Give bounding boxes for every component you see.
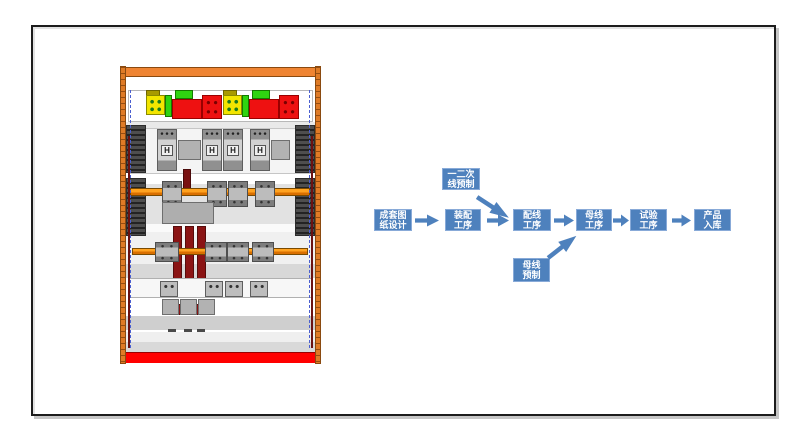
green-strip bbox=[242, 95, 249, 117]
gray-panel bbox=[162, 202, 214, 224]
cabinet-band bbox=[126, 332, 315, 342]
gray-block bbox=[180, 299, 197, 315]
flow-step-warehousing: 产品 入库 bbox=[694, 209, 731, 231]
arrow-right-icon bbox=[613, 214, 629, 227]
yellow-terminal-block bbox=[223, 95, 242, 115]
breaker-symbol: H bbox=[227, 145, 239, 156]
marking-dash bbox=[197, 329, 205, 332]
yellow-terminal-block bbox=[146, 95, 165, 115]
spacer-block bbox=[178, 140, 201, 160]
cabinet-right-rail bbox=[315, 66, 321, 364]
cabinet-band bbox=[126, 342, 315, 352]
cabinet-top-frame bbox=[120, 67, 321, 77]
flow-branch-busbar-prefab: 母线 预制 bbox=[513, 258, 550, 282]
maroon-line bbox=[128, 136, 130, 348]
flow-step-assembly: 装配 工序 bbox=[445, 209, 481, 231]
arrow-up-right-icon bbox=[544, 230, 581, 263]
spacer-block bbox=[271, 140, 290, 160]
breaker-symbol: H bbox=[254, 145, 266, 156]
flow-step-label: 试验 工序 bbox=[639, 210, 657, 230]
flow-branch-wire-prefab: 一二次 线预制 bbox=[442, 168, 480, 190]
dark-red-riser bbox=[183, 169, 191, 190]
busbar-clamp bbox=[205, 242, 227, 262]
guide-line bbox=[130, 90, 131, 348]
busbar-clamp bbox=[252, 242, 274, 262]
flow-step-label: 成套图 纸设计 bbox=[379, 210, 406, 230]
cabinet-band bbox=[126, 77, 315, 90]
green-tab bbox=[252, 90, 270, 99]
gray-block bbox=[162, 299, 179, 315]
circuit-breaker: H bbox=[250, 129, 270, 171]
maroon-line bbox=[311, 136, 313, 348]
breaker-symbol: H bbox=[206, 145, 218, 156]
cabinet-band bbox=[126, 264, 315, 278]
arrow-right-icon bbox=[415, 214, 439, 227]
terminal-block bbox=[225, 281, 243, 297]
circuit-breaker: H bbox=[223, 129, 243, 171]
flow-step-label: 母线 工序 bbox=[585, 210, 603, 230]
busbar-clamp bbox=[255, 181, 275, 207]
marking-dash bbox=[168, 329, 176, 332]
slide-canvas: H H H H bbox=[31, 25, 776, 416]
circuit-breaker: H bbox=[202, 129, 222, 171]
arrow-right-icon bbox=[554, 214, 574, 227]
flow-step-label: 装配 工序 bbox=[454, 210, 472, 230]
red-terminal-block bbox=[249, 99, 279, 119]
flow-step-label: 母线 预制 bbox=[522, 260, 540, 280]
cabinet-bottom-red-strip bbox=[126, 352, 315, 363]
gray-block bbox=[198, 299, 215, 315]
cabinet-band bbox=[126, 224, 315, 232]
flow-step-busbar: 母线 工序 bbox=[576, 209, 612, 231]
guide-line bbox=[309, 90, 310, 348]
flow-step-wiring: 配线 工序 bbox=[513, 209, 551, 231]
terminal-block bbox=[160, 281, 178, 297]
red-terminal-block bbox=[279, 95, 299, 119]
busbar-clamp bbox=[228, 181, 248, 207]
busbar-clamp bbox=[227, 242, 249, 262]
busbar-clamp bbox=[155, 242, 179, 262]
red-terminal-block bbox=[202, 95, 222, 119]
cabinet-band bbox=[126, 316, 315, 330]
flow-step-testing: 试验 工序 bbox=[630, 209, 667, 231]
green-tab bbox=[175, 90, 193, 99]
terminal-block bbox=[250, 281, 268, 297]
terminal-block bbox=[205, 281, 223, 297]
flow-step-drawing-design: 成套图 纸设计 bbox=[374, 209, 412, 231]
flow-step-label: 配线 工序 bbox=[523, 210, 541, 230]
arrow-right-icon bbox=[672, 214, 691, 227]
flow-step-label: 产品 入库 bbox=[703, 210, 721, 230]
marking-dash bbox=[184, 329, 192, 332]
green-strip bbox=[165, 95, 172, 117]
flow-step-label: 一二次 线预制 bbox=[447, 169, 474, 189]
slide-content: H H H H bbox=[33, 27, 774, 414]
red-terminal-block bbox=[172, 99, 202, 119]
circuit-breaker: H bbox=[157, 129, 177, 171]
breaker-symbol: H bbox=[161, 145, 173, 156]
cabinet-drawing: H H H H bbox=[120, 66, 321, 364]
